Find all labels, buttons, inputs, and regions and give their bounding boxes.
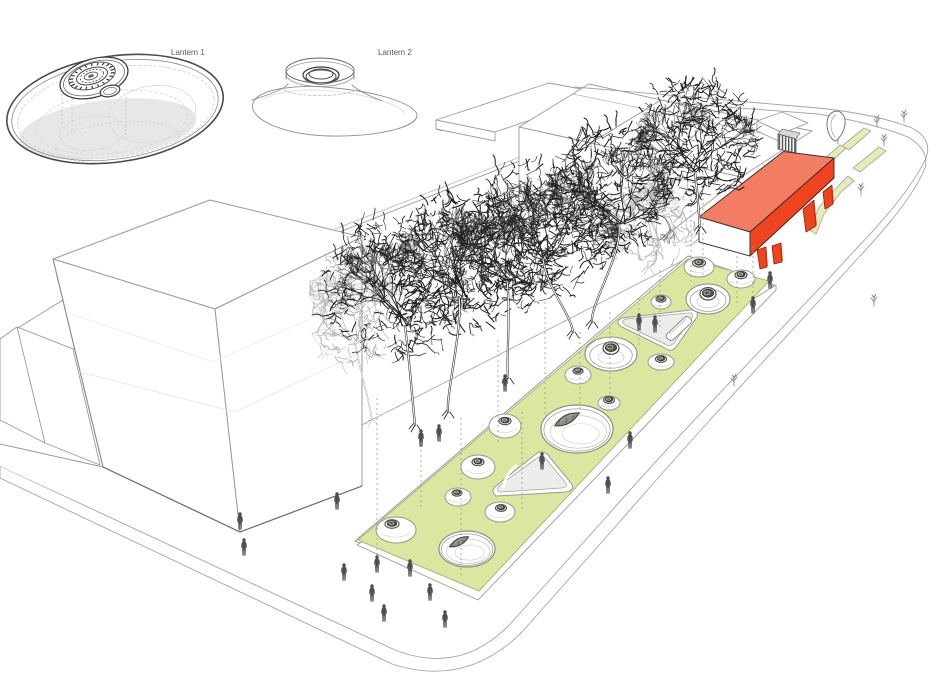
svg-text:Lantern 1: Lantern 1 xyxy=(171,48,205,57)
svg-text:Lantern 2: Lantern 2 xyxy=(378,48,412,57)
